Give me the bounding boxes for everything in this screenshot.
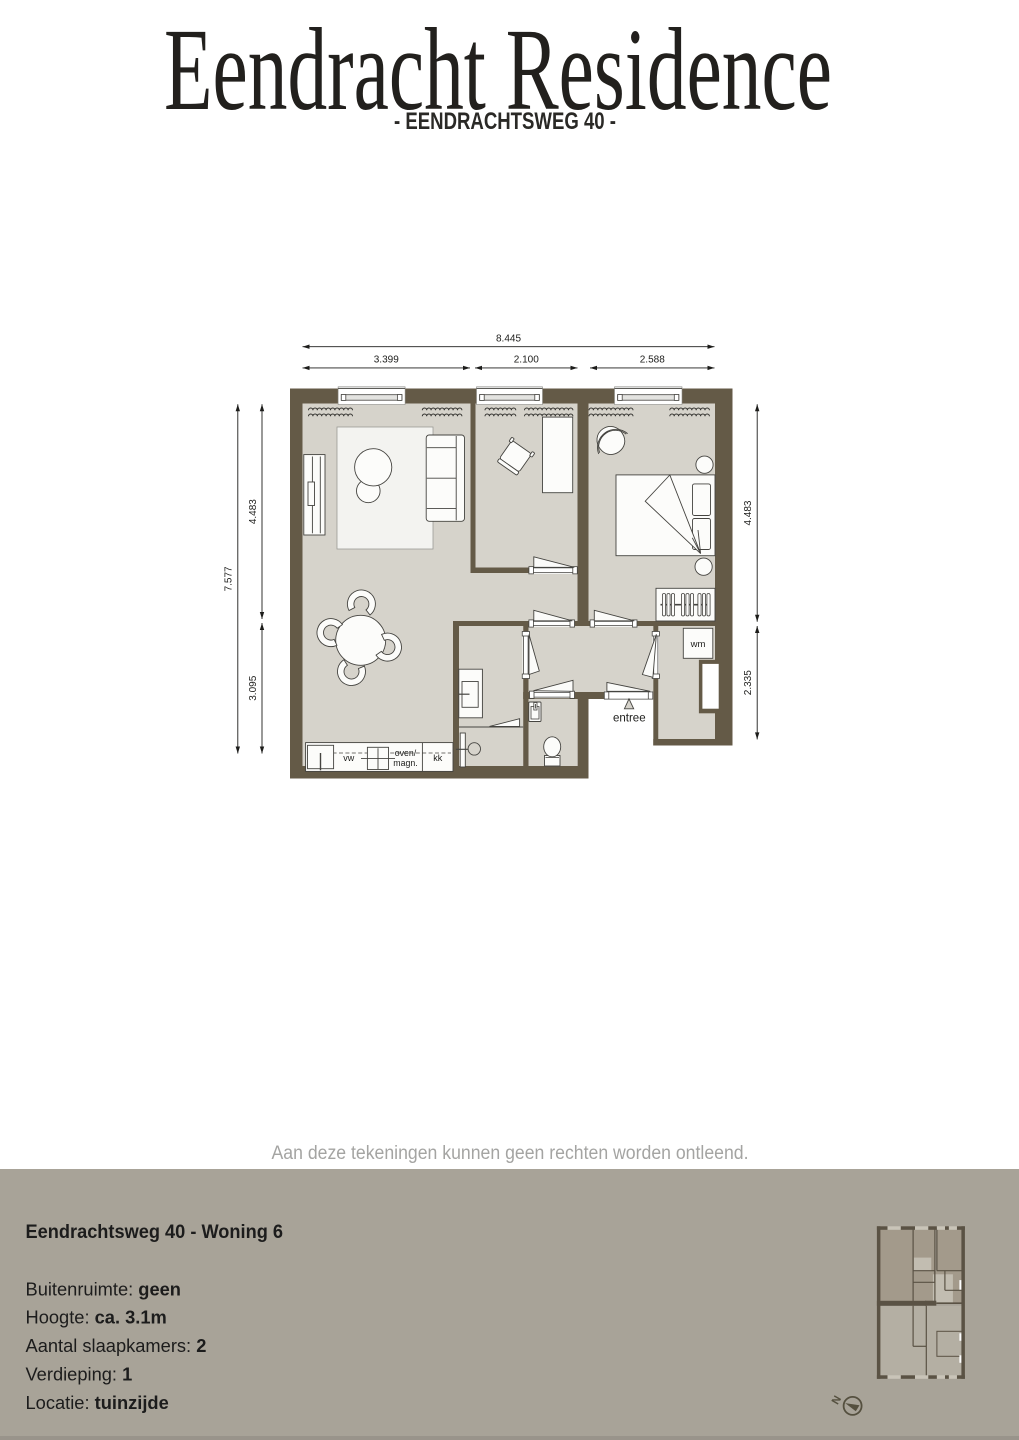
svg-text:wm: wm <box>690 639 706 650</box>
svg-text:2.588: 2.588 <box>640 355 665 366</box>
svg-text:- EENDRACHTSWEG 40 -: - EENDRACHTSWEG 40 - <box>394 108 616 135</box>
svg-text:kk: kk <box>433 753 443 763</box>
svg-text:Aan deze tekeningen kunnen gee: Aan deze tekeningen kunnen geen rechten … <box>272 1143 749 1164</box>
svg-text:8.445: 8.445 <box>496 334 521 345</box>
svg-text:Aantal slaapkamers: 2: Aantal slaapkamers: 2 <box>26 1335 207 1356</box>
svg-text:3.095: 3.095 <box>248 675 259 700</box>
svg-text:entree: entree <box>613 713 646 725</box>
svg-text:2.335: 2.335 <box>743 670 754 695</box>
svg-text:magn.: magn. <box>393 758 417 768</box>
svg-text:7.577: 7.577 <box>224 566 235 591</box>
svg-text:Buitenruimte: geen: Buitenruimte: geen <box>26 1278 181 1299</box>
svg-text:Eendrachtsweg 40 - Woning 6: Eendrachtsweg 40 - Woning 6 <box>26 1222 284 1243</box>
svg-text:4.483: 4.483 <box>743 500 754 525</box>
svg-text:3.399: 3.399 <box>374 355 399 366</box>
svg-text:2.100: 2.100 <box>514 355 539 366</box>
svg-text:N: N <box>830 1394 844 1407</box>
svg-text:Locatie: tuinzijde: Locatie: tuinzijde <box>26 1392 169 1413</box>
svg-text:Hoogte: ca. 3.1m: Hoogte: ca. 3.1m <box>26 1307 167 1328</box>
svg-text:Verdieping: 1: Verdieping: 1 <box>26 1364 133 1385</box>
svg-text:vw: vw <box>343 753 355 763</box>
svg-text:4.483: 4.483 <box>248 499 259 524</box>
svg-text:oven/: oven/ <box>395 748 417 758</box>
